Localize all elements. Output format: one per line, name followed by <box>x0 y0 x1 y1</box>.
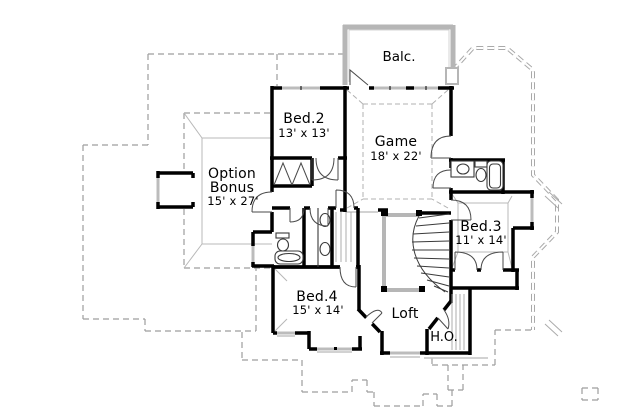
sink-fixture <box>320 243 330 256</box>
game-side-door <box>431 136 451 158</box>
room-labels: Balc. Bed.2 13' x 13' Game 18' x 22' Opt… <box>207 49 507 345</box>
staircase <box>412 214 449 292</box>
room-dims-bed3: 11' x 14' <box>455 233 507 247</box>
toilet-tank <box>475 161 487 167</box>
room-dims-game: 18' x 22' <box>370 149 422 163</box>
roof-outline-dashed <box>83 54 598 406</box>
room-dims-bonus: 15' x 27' <box>207 194 259 208</box>
toilet-tank <box>276 233 289 238</box>
bath-door <box>290 208 304 222</box>
bathtub-inner <box>490 164 501 188</box>
room-label-bed2: Bed.2 <box>283 111 324 127</box>
bed3-closet-doors <box>455 252 503 270</box>
toilet-fixture <box>278 239 289 251</box>
floor-plan-canvas: Balc. Bed.2 13' x 13' Game 18' x 22' Opt… <box>0 0 620 415</box>
bathtub-inner <box>278 254 300 262</box>
linen-closet-shelves <box>336 212 351 262</box>
bed2-door <box>312 158 338 180</box>
room-label-loft: Loft <box>391 306 418 322</box>
stair-treads <box>412 214 449 292</box>
toilet-fixture <box>476 169 486 182</box>
room-label-ho: H.O. <box>430 330 458 345</box>
room-dims-bed2: 13' x 13' <box>278 126 330 140</box>
sink-fixture <box>457 164 469 174</box>
bed2-closet-doors <box>274 163 310 185</box>
room-label-game: Game <box>375 134 417 150</box>
floor-plan-page: Balc. Bed.2 13' x 13' Game 18' x 22' Opt… <box>0 0 620 415</box>
hall-bath-door <box>433 170 451 188</box>
door-swings <box>252 70 503 329</box>
balcony-door <box>350 70 368 85</box>
room-dims-bed4: 15' x 14' <box>292 303 344 317</box>
stair-railing <box>382 214 422 290</box>
bed4-door <box>340 267 356 287</box>
balcony-bay-joint <box>446 68 458 84</box>
room-label-balcony: Balc. <box>383 49 416 65</box>
